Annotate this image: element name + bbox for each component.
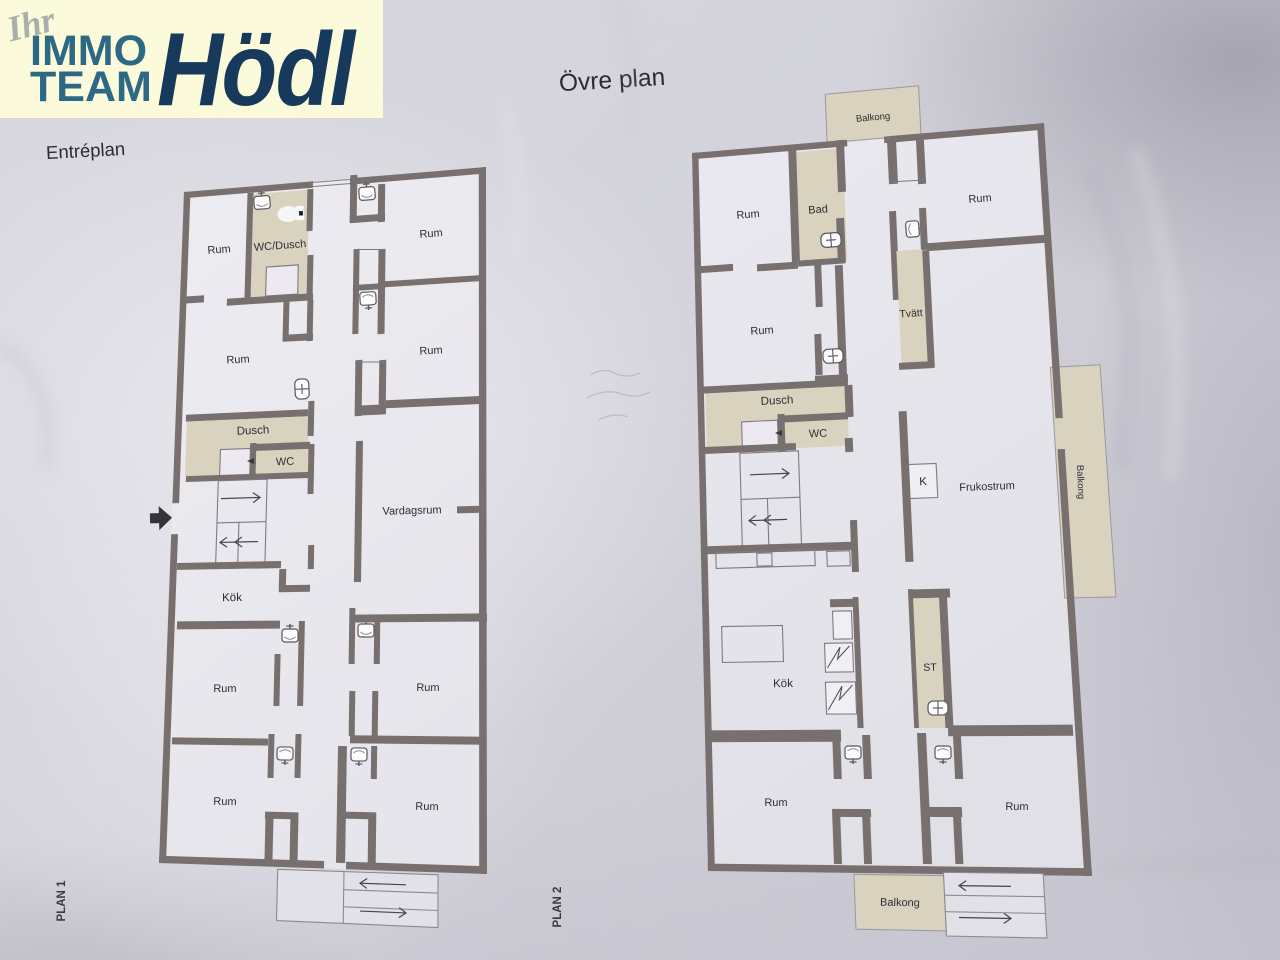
svg-text:Balkong: Balkong — [1074, 465, 1086, 500]
svg-text:Rum: Rum — [1005, 801, 1028, 813]
svg-text:ST: ST — [923, 662, 937, 674]
svg-text:Frukostrum: Frukostrum — [959, 480, 1015, 494]
svg-text:Balkong: Balkong — [880, 897, 920, 910]
svg-text:Rum: Rum — [736, 208, 760, 222]
svg-text:WC: WC — [809, 428, 828, 441]
svg-text:Rum: Rum — [750, 324, 774, 337]
svg-text:Bad: Bad — [808, 203, 828, 216]
svg-text:Tvätt: Tvätt — [899, 307, 923, 320]
svg-text:Kök: Kök — [773, 678, 793, 690]
svg-text:Rum: Rum — [764, 797, 787, 809]
svg-text:Rum: Rum — [968, 192, 992, 206]
svg-text:Dusch: Dusch — [760, 394, 793, 408]
svg-text:K: K — [919, 476, 927, 488]
